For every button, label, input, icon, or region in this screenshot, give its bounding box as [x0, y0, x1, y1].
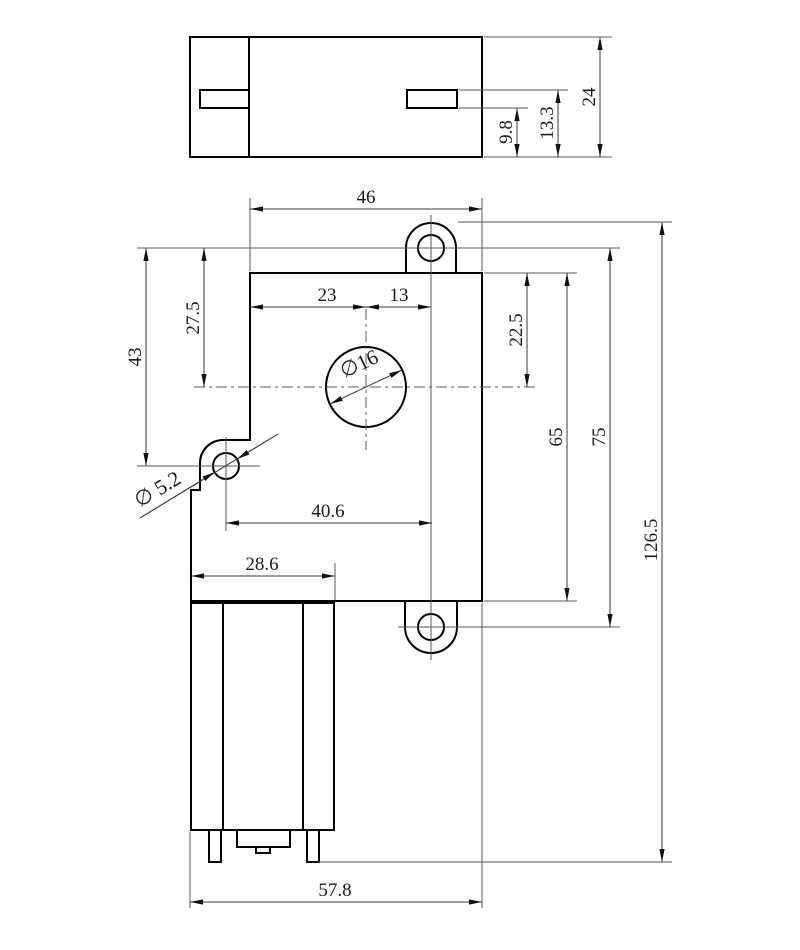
- dimension-lines: [140, 37, 662, 902]
- dim-28-6: 28.6: [245, 554, 278, 575]
- dim-65: 65: [546, 428, 567, 447]
- motor-terminal-right: [307, 830, 319, 862]
- dim-22-5: 22.5: [506, 313, 527, 346]
- dim-75: 75: [589, 428, 610, 447]
- motor-body: [191, 603, 334, 830]
- part-outlines: [190, 37, 482, 862]
- dim-57-8: 57.8: [318, 880, 351, 901]
- dim-126-5: 126.5: [641, 519, 662, 562]
- dim-23: 23: [318, 285, 337, 306]
- front-view-body: [191, 273, 482, 601]
- dim-13-3: 13.3: [537, 106, 558, 139]
- label-side-hole-diameter: ∅ 5.2: [130, 466, 185, 512]
- dim-27-5: 27.5: [183, 301, 204, 334]
- top-view-slot-right: [407, 90, 457, 108]
- motor-end-nub: [256, 847, 270, 853]
- engineering-drawing-canvas: 46 23 13 27.5 43 22.5 65 75 126.5 40.6 2…: [0, 0, 800, 950]
- dim-40-6: 40.6: [311, 501, 344, 522]
- dim-46: 46: [357, 187, 376, 208]
- dim-13: 13: [390, 285, 409, 306]
- dim-24: 24: [579, 87, 600, 107]
- label-bore-diameter: ∅16: [336, 344, 382, 382]
- gear-motor-dimension-drawing: 46 23 13 27.5 43 22.5 65 75 126.5 40.6 2…: [0, 0, 800, 950]
- top-view-slot-left: [200, 90, 249, 108]
- motor-terminal-left: [209, 830, 221, 862]
- top-view-body: [190, 37, 482, 157]
- extension-and-center-lines: [137, 37, 672, 908]
- dim-43: 43: [125, 348, 146, 367]
- dim-9-8: 9.8: [496, 120, 517, 144]
- side-hole-arrow-upper: [237, 434, 278, 459]
- motor-end-cap: [237, 830, 290, 847]
